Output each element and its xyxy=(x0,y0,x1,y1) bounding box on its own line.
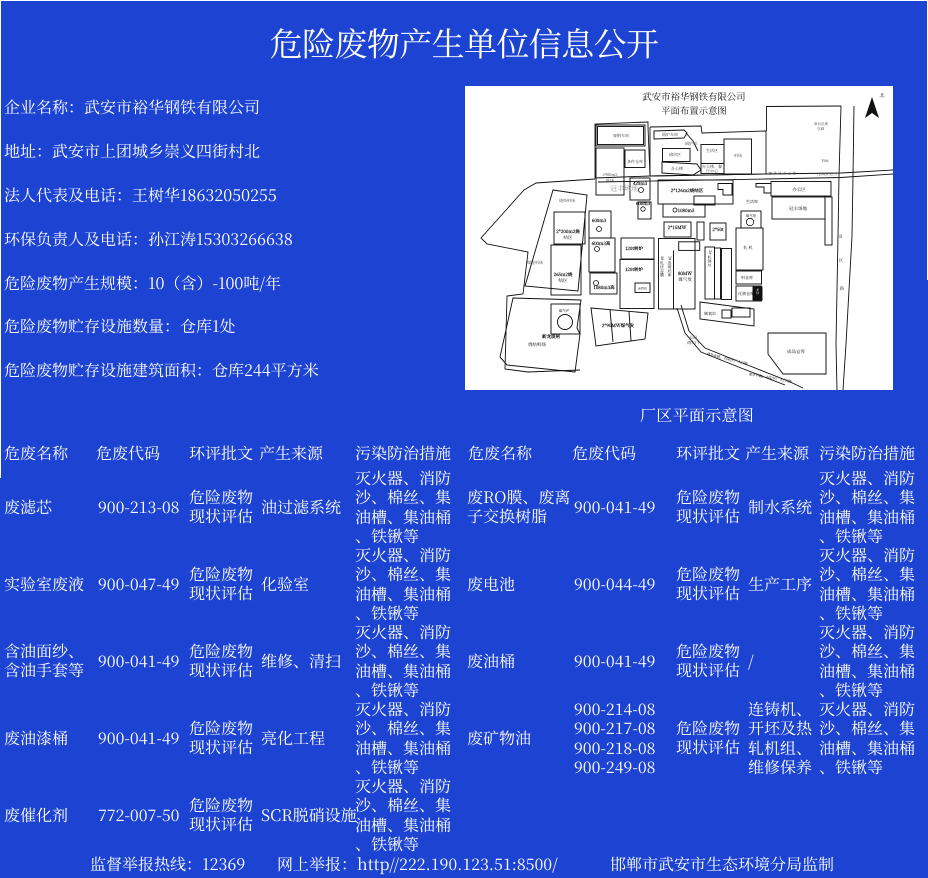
svg-text:1080m3: 1080m3 xyxy=(678,208,695,214)
svg-text:废钢车间: 废钢车间 xyxy=(613,133,629,139)
svg-text:料仓库: 料仓库 xyxy=(741,275,753,281)
svg-text:园: 园 xyxy=(838,234,843,240)
svg-text:料场: 料场 xyxy=(822,159,830,164)
svg-text:冠丰场地: 冠丰场地 xyxy=(789,206,807,212)
svg-text:600m3高: 600m3高 xyxy=(592,241,611,247)
svg-text:煤气炉: 煤气炉 xyxy=(559,309,570,314)
svg-text:120t转炉: 120t转炉 xyxy=(625,267,644,273)
svg-text:磅房区: 磅房区 xyxy=(669,152,681,158)
svg-text:120t转炉: 120t转炉 xyxy=(625,246,644,252)
svg-text:600m3: 600m3 xyxy=(592,218,607,224)
svg-text:煤气发: 煤气发 xyxy=(678,277,692,283)
svg-text:结区: 结区 xyxy=(559,278,568,284)
svg-text:成品仓库: 成品仓库 xyxy=(787,349,805,355)
svg-text:烧结料场: 烧结料场 xyxy=(559,198,575,204)
svg-text:（公司区大门）: （公司区大门） xyxy=(815,172,839,177)
svg-text:4#轧坯存放: 4#轧坯存放 xyxy=(659,256,665,277)
svg-text:区路: 区路 xyxy=(818,127,826,132)
svg-text:3#连铸坯库: 3#连铸坯库 xyxy=(667,256,673,278)
svg-text:武安市裕华钢铁有限公司: 武安市裕华钢铁有限公司 xyxy=(642,89,745,103)
svg-text:连铸机: 连铸机 xyxy=(638,287,647,291)
svg-text:南大门: 南大门 xyxy=(687,340,699,346)
svg-text:2*15MW: 2*15MW xyxy=(668,225,687,231)
svg-text:化液仓库: 化液仓库 xyxy=(738,291,754,297)
svg-text:轧 机: 轧 机 xyxy=(743,245,752,251)
svg-text:煤泥料场: 煤泥料场 xyxy=(527,260,543,266)
svg-text:生活库: 生活库 xyxy=(746,199,758,205)
svg-text:2#轧钢坯: 2#轧钢坯 xyxy=(707,250,712,267)
svg-text:平面布置示意图: 平面布置示意图 xyxy=(661,103,727,117)
svg-text:2*126m2烧结区: 2*126m2烧结区 xyxy=(671,188,704,194)
svg-text:结区: 结区 xyxy=(564,235,573,241)
svg-text:北: 北 xyxy=(879,92,884,99)
svg-text:生活区: 生活区 xyxy=(706,148,718,154)
svg-text:锅炉车间: 锅炉车间 xyxy=(662,132,678,138)
svg-text:区: 区 xyxy=(839,258,844,264)
svg-text:条件仓库: 条件仓库 xyxy=(627,159,643,165)
svg-text:建华成办公路: 建华成办公路 xyxy=(768,171,797,176)
svg-text:办公区: 办公区 xyxy=(792,187,806,193)
svg-text:2*90MW煤气发: 2*90MW煤气发 xyxy=(602,323,635,329)
svg-text:420m3: 420m3 xyxy=(633,181,648,187)
svg-text:建华乡路、有限区厂大门路: 建华乡路、有限区厂大门路 xyxy=(706,352,748,367)
svg-text:制氧站: 制氧站 xyxy=(704,311,716,317)
svg-text:烧结料场: 烧结料场 xyxy=(528,342,546,348)
svg-text:600m3: 600m3 xyxy=(636,201,651,207)
svg-text:1080m3高: 1080m3高 xyxy=(593,285,615,291)
svg-text:煤气柜: 煤气柜 xyxy=(746,214,757,219)
svg-text:2*50t: 2*50t xyxy=(712,227,724,233)
svg-text:新龙废闸: 新龙废闸 xyxy=(542,334,560,340)
svg-text:锅炉房: 锅炉房 xyxy=(685,141,697,147)
svg-text:路: 路 xyxy=(840,286,845,292)
svg-text:办公楼: 办公楼 xyxy=(671,166,683,172)
svg-text:厅中心: 厅中心 xyxy=(706,169,718,175)
svg-text:料场: 料场 xyxy=(734,153,742,159)
